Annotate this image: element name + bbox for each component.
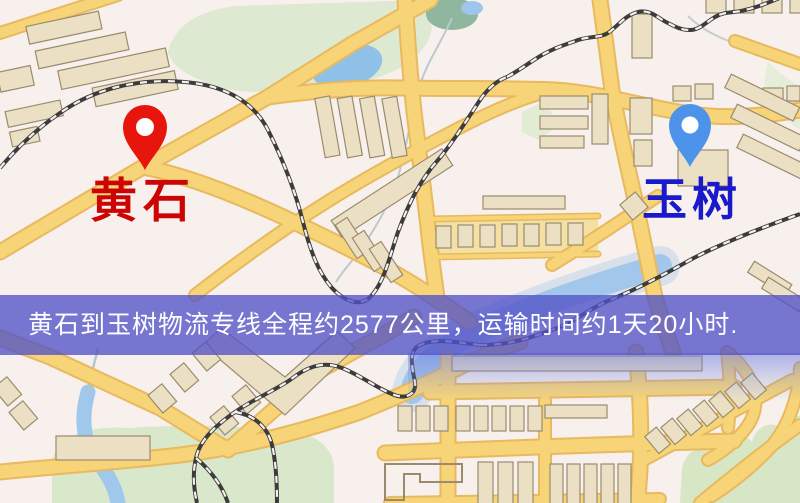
route-info-banner: 黄石到玉树物流专线全程约2577公里，运输时间约1天20小时.	[0, 295, 800, 355]
map-screenshot: 黄石 玉树 黄石到玉树物流专线全程约2577公里，运输时间约1天20小时.	[0, 0, 800, 503]
map-canvas[interactable]: 黄石 玉树	[0, 0, 800, 503]
destination-label: 玉树	[642, 173, 742, 226]
origin-label: 黄石	[90, 174, 196, 229]
water-haze	[408, 353, 800, 401]
route-info-text: 黄石到玉树物流专线全程约2577公里，运输时间约1天20小时.	[28, 305, 738, 341]
